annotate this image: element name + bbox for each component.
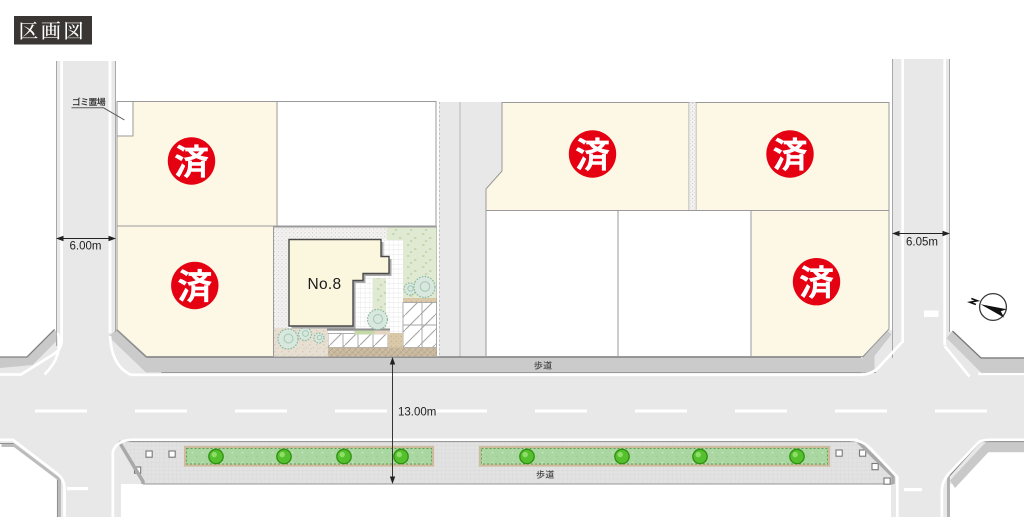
svg-text:13.00m: 13.00m [398, 407, 436, 419]
svg-text:6.00m: 6.00m [70, 241, 102, 253]
svg-text:6.05m: 6.05m [906, 237, 938, 249]
svg-text:No.8: No.8 [308, 276, 342, 293]
